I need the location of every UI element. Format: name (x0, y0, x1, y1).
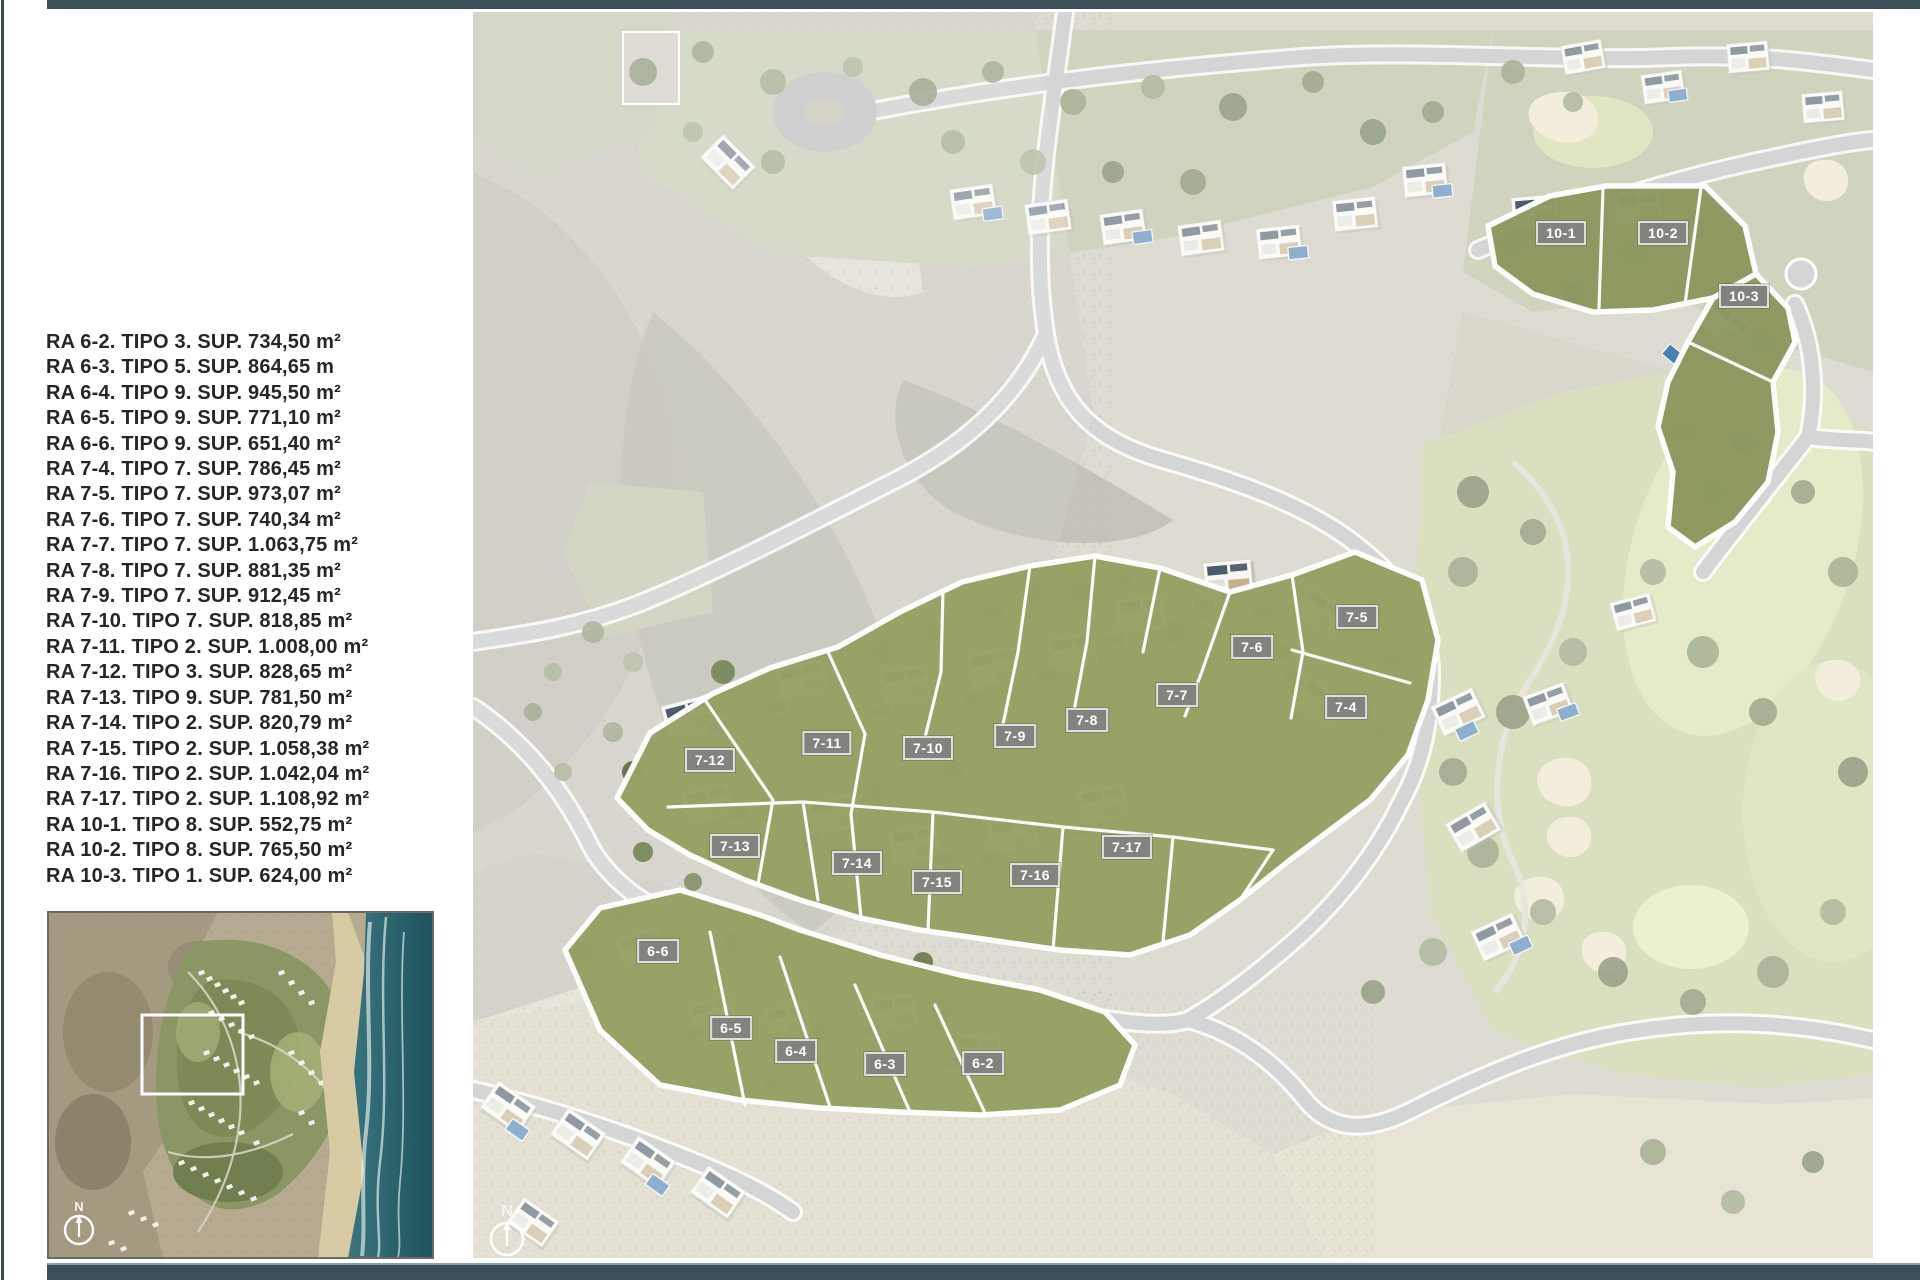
plot-list-item-ra-6-3: RA 6-3. TIPO 5. SUP. 864,65 m (46, 355, 446, 380)
plot-list-item-ra-7-9: RA 7-9. TIPO 7. SUP. 912,45 m² (46, 584, 446, 609)
page-root: { "page": { "background": "#ffffff", "to… (0, 0, 1920, 1280)
left-border-rule (1, 0, 4, 1280)
plot-list-item-ra-7-17: RA 7-17. TIPO 2. SUP. 1.108,92 m² (46, 787, 446, 812)
plot-list-item-ra-7-12: RA 7-12. TIPO 3. SUP. 828,65 m² (46, 660, 446, 685)
plot-list-item-ra-7-6: RA 7-6. TIPO 7. SUP. 740,34 m² (46, 508, 446, 533)
inset-aerial-image: N (48, 912, 433, 1258)
plot-list-item-ra-7-4: RA 7-4. TIPO 7. SUP. 786,45 m² (46, 457, 446, 482)
plot-list-item-ra-10-2: RA 10-2. TIPO 8. SUP. 765,50 m² (46, 838, 446, 863)
north-label: N (74, 1199, 83, 1214)
plot-list-item-ra-7-13: RA 7-13. TIPO 9. SUP. 781,50 m² (46, 686, 446, 711)
plot-list-item-ra-10-1: RA 10-1. TIPO 8. SUP. 552,75 m² (46, 813, 446, 838)
plot-list-item-ra-7-15: RA 7-15. TIPO 2. SUP. 1.058,38 m² (46, 737, 446, 762)
site-plan-map: N (473, 12, 1873, 1258)
north-label: N (501, 1203, 513, 1220)
plot-list-item-ra-10-3: RA 10-3. TIPO 1. SUP. 624,00 m² (46, 864, 446, 889)
plot-list-item-ra-6-5: RA 6-5. TIPO 9. SUP. 771,10 m² (46, 406, 446, 431)
plot-list-item-ra-7-14: RA 7-14. TIPO 2. SUP. 820,79 m² (46, 711, 446, 736)
map-aerial-image: N (473, 12, 1873, 1258)
plot-list-item-ra-6-6: RA 6-6. TIPO 9. SUP. 651,40 m² (46, 432, 446, 457)
plot-list: RA 6-2. TIPO 3. SUP. 734,50 m²RA 6-3. TI… (46, 330, 446, 889)
plot-list-item-ra-7-11: RA 7-11. TIPO 2. SUP. 1.008,00 m² (46, 635, 446, 660)
plot-list-item-ra-6-2: RA 6-2. TIPO 3. SUP. 734,50 m² (46, 330, 446, 355)
plot-list-item-ra-7-10: RA 7-10. TIPO 7. SUP. 818,85 m² (46, 609, 446, 634)
plot-list-item-ra-7-16: RA 7-16. TIPO 2. SUP. 1.042,04 m² (46, 762, 446, 787)
plot-list-item-ra-7-5: RA 7-5. TIPO 7. SUP. 973,07 m² (46, 482, 446, 507)
bottom-accent-bar (47, 1263, 1920, 1280)
plot-list-item-ra-7-8: RA 7-8. TIPO 7. SUP. 881,35 m² (46, 559, 446, 584)
plot-list-item-ra-7-7: RA 7-7. TIPO 7. SUP. 1.063,75 m² (46, 533, 446, 558)
top-accent-bar (47, 0, 1920, 9)
plot-list-item-ra-6-4: RA 6-4. TIPO 9. SUP. 945,50 m² (46, 381, 446, 406)
inset-location-map: N (48, 912, 433, 1258)
